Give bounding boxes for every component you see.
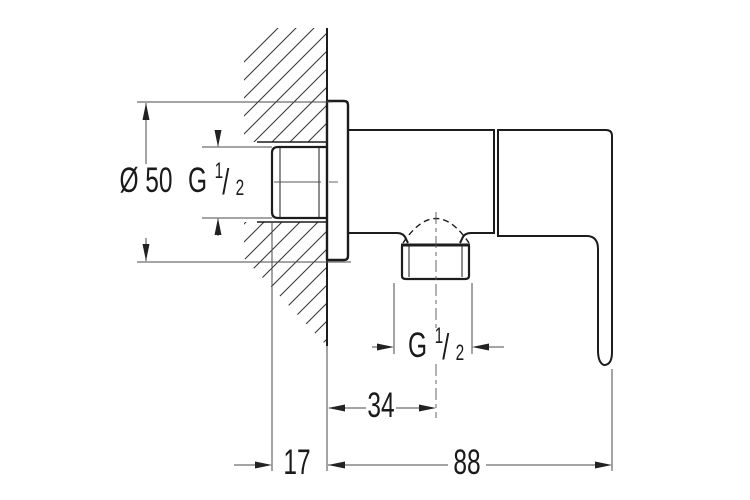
- svg-text:G: G: [408, 327, 427, 365]
- svg-text:2: 2: [456, 341, 465, 365]
- svg-text:/: /: [442, 327, 449, 368]
- svg-text:2: 2: [236, 176, 245, 200]
- label-17: 17: [283, 444, 310, 482]
- label-34: 34: [367, 387, 394, 425]
- dim-diameter-50: Ø 50: [119, 103, 172, 261]
- svg-text:/: /: [222, 162, 229, 203]
- label-thread-outlet: G 1 / 2: [408, 324, 464, 367]
- dim-thread-wall: G 1 / 2: [188, 130, 244, 236]
- label-diameter: Ø 50: [119, 162, 172, 200]
- outlet-connection: [401, 219, 470, 280]
- label-thread-wall: G 1 / 2: [188, 159, 244, 202]
- label-88: 88: [453, 444, 480, 482]
- svg-text:G: G: [188, 162, 207, 200]
- wall-section: [244, 28, 327, 346]
- technical-drawing-canvas: Ø 50 G 1 / 2 G 1 / 2 34: [0, 0, 750, 500]
- dim-34: 34: [328, 387, 436, 425]
- outlet-nut: [402, 246, 469, 279]
- escutcheon-plate: [327, 101, 348, 260]
- lever-handle: [498, 130, 612, 365]
- wall-hatch-lower: [244, 222, 327, 346]
- dim-thread-outlet: G 1 / 2: [372, 324, 504, 367]
- shower-valve-dimension-drawing: Ø 50 G 1 / 2 G 1 / 2 34: [0, 0, 750, 500]
- dim-88: 88: [328, 444, 612, 482]
- valve-body: [348, 130, 494, 243]
- wall-hatch-upper: [244, 28, 327, 142]
